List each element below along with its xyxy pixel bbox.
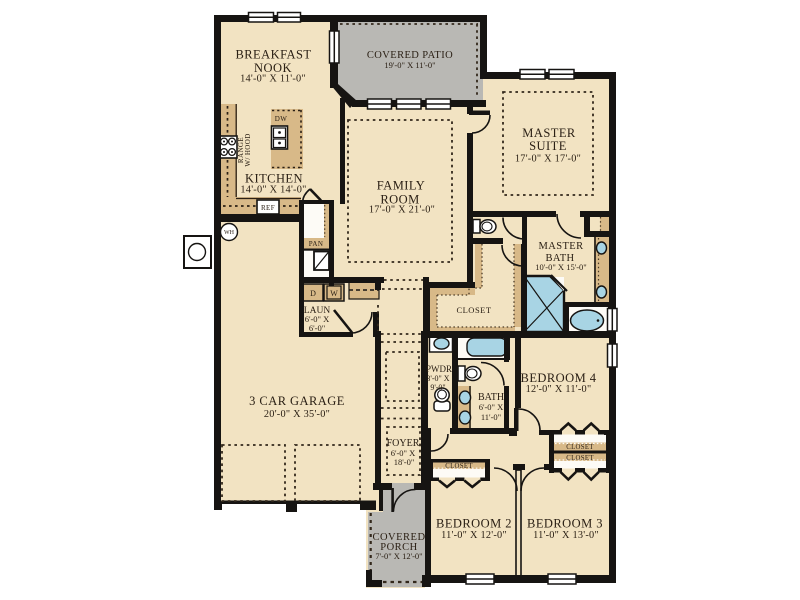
svg-text:6'-0" X: 6'-0" X [479,402,504,412]
svg-text:KITCHEN: KITCHEN [245,172,303,186]
svg-text:BEDROOM 3: BEDROOM 3 [527,517,603,531]
svg-text:BREAKFAST: BREAKFAST [235,48,311,62]
svg-text:17'-0" X 21'-0": 17'-0" X 21'-0" [369,205,435,216]
svg-text:CLOSET: CLOSET [566,455,594,462]
svg-text:FAMILY: FAMILY [377,179,425,193]
svg-text:12'-0" X 11'-0": 12'-0" X 11'-0" [526,384,592,395]
svg-text:BEDROOM 4: BEDROOM 4 [521,371,597,385]
svg-text:9'-0": 9'-0" [430,383,445,392]
svg-text:MASTER: MASTER [522,126,576,140]
svg-text:14'-0" X 11'-0": 14'-0" X 11'-0" [240,74,306,85]
svg-text:W/ HOOD: W/ HOOD [244,133,252,166]
svg-text:DW: DW [275,115,287,123]
svg-text:7'-0" X 12'-0": 7'-0" X 12'-0" [375,551,422,561]
svg-text:WH: WH [224,230,235,236]
svg-text:W: W [330,289,338,298]
svg-text:CLOSET: CLOSET [445,463,473,470]
svg-text:14'-0" X 14'-0": 14'-0" X 14'-0" [240,185,306,196]
svg-text:10'-0" X 15'-0": 10'-0" X 15'-0" [535,262,587,272]
svg-text:3'-0" X: 3'-0" X [426,374,449,383]
svg-text:19'-0" X 11'-0": 19'-0" X 11'-0" [384,60,435,70]
svg-text:CLOSET: CLOSET [456,305,491,315]
svg-text:REF: REF [261,204,275,212]
svg-text:MASTER: MASTER [539,241,584,252]
svg-text:20'-0" X 35'-0": 20'-0" X 35'-0" [264,409,330,420]
svg-text:SUITE: SUITE [529,139,567,153]
svg-text:11'-0" X 12'-0": 11'-0" X 12'-0" [441,530,507,541]
svg-text:PAN: PAN [309,240,324,248]
svg-text:18'-0": 18'-0" [394,457,415,467]
svg-text:PWDR: PWDR [426,364,452,374]
svg-text:3 CAR GARAGE: 3 CAR GARAGE [249,394,345,408]
svg-text:BEDROOM 2: BEDROOM 2 [436,517,512,531]
svg-text:6'-0": 6'-0" [309,323,325,333]
svg-text:D: D [310,289,316,298]
svg-text:11'-0": 11'-0" [481,412,501,422]
svg-text:CLOSET: CLOSET [566,444,594,451]
svg-text:11'-0" X 13'-0": 11'-0" X 13'-0" [533,530,599,541]
svg-text:17'-0" X 17'-0": 17'-0" X 17'-0" [515,154,581,165]
